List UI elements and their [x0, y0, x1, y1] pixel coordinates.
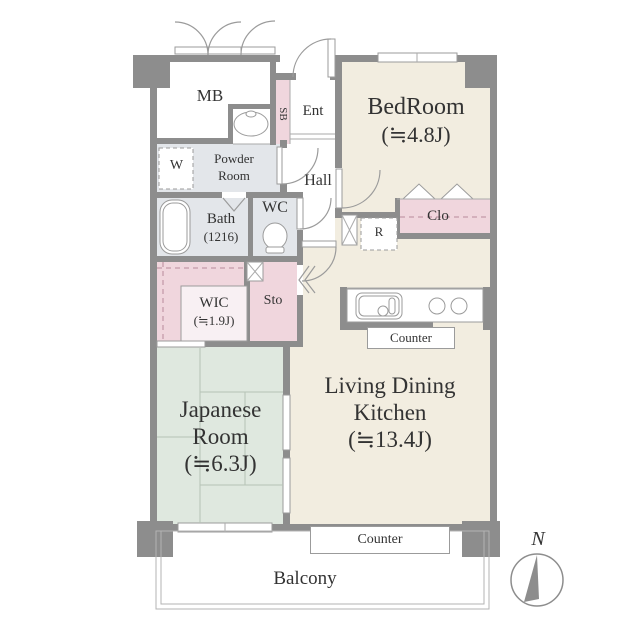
entrance-door — [293, 39, 335, 77]
pillar-bottom-right — [462, 521, 500, 557]
bedroom-window — [378, 53, 457, 62]
wc-door — [297, 198, 331, 229]
toilet-icon — [263, 223, 287, 253]
ldk-label: Living Dining Kitchen (≒13.4J) — [310, 372, 470, 453]
pillar-top-left — [133, 55, 170, 88]
pillar-bottom-left — [137, 521, 173, 557]
entrance-label: Ent — [291, 103, 335, 120]
window-counter-label: Counter — [310, 526, 450, 554]
bedroom-label: BedRoom (≒4.8J) — [342, 93, 490, 149]
meter-box-label: MB — [170, 86, 250, 106]
wic-sliding-door — [157, 341, 205, 347]
storage-label: Sto — [250, 293, 296, 309]
powder-room-label: Powder Room — [196, 150, 272, 184]
pillar-top-right — [465, 62, 497, 88]
wc-label: WC — [253, 199, 297, 217]
compass-north-label: N — [524, 528, 552, 551]
wic-label: WIC (≒1.9J) — [182, 294, 246, 330]
japanese-room-label: Japanese Room (≒6.3J) — [158, 396, 283, 477]
washing-machine-label: W — [160, 158, 193, 174]
pipe-space-box-1 — [342, 215, 357, 245]
bath-label: Bath (1216) — [192, 211, 250, 245]
hall-label: Hall — [296, 172, 340, 190]
meter-box-doors — [175, 21, 275, 55]
compass-icon — [511, 554, 563, 606]
shoe-box-label: SB — [277, 99, 289, 129]
bathtub-icon — [160, 200, 190, 254]
kitchen-counter-label: Counter — [367, 327, 455, 349]
washbasin-icon — [234, 111, 268, 136]
floor-plan: MB SB Ent BedRoom (≒4.8J) Powder Room W … — [0, 0, 640, 640]
closet-label: Clo — [408, 208, 468, 225]
pipe-space-box-2 — [247, 262, 263, 281]
balcony-label: Balcony — [240, 568, 370, 590]
refrigerator-label: R — [361, 224, 397, 240]
kitchen-sink-icon — [356, 293, 402, 319]
